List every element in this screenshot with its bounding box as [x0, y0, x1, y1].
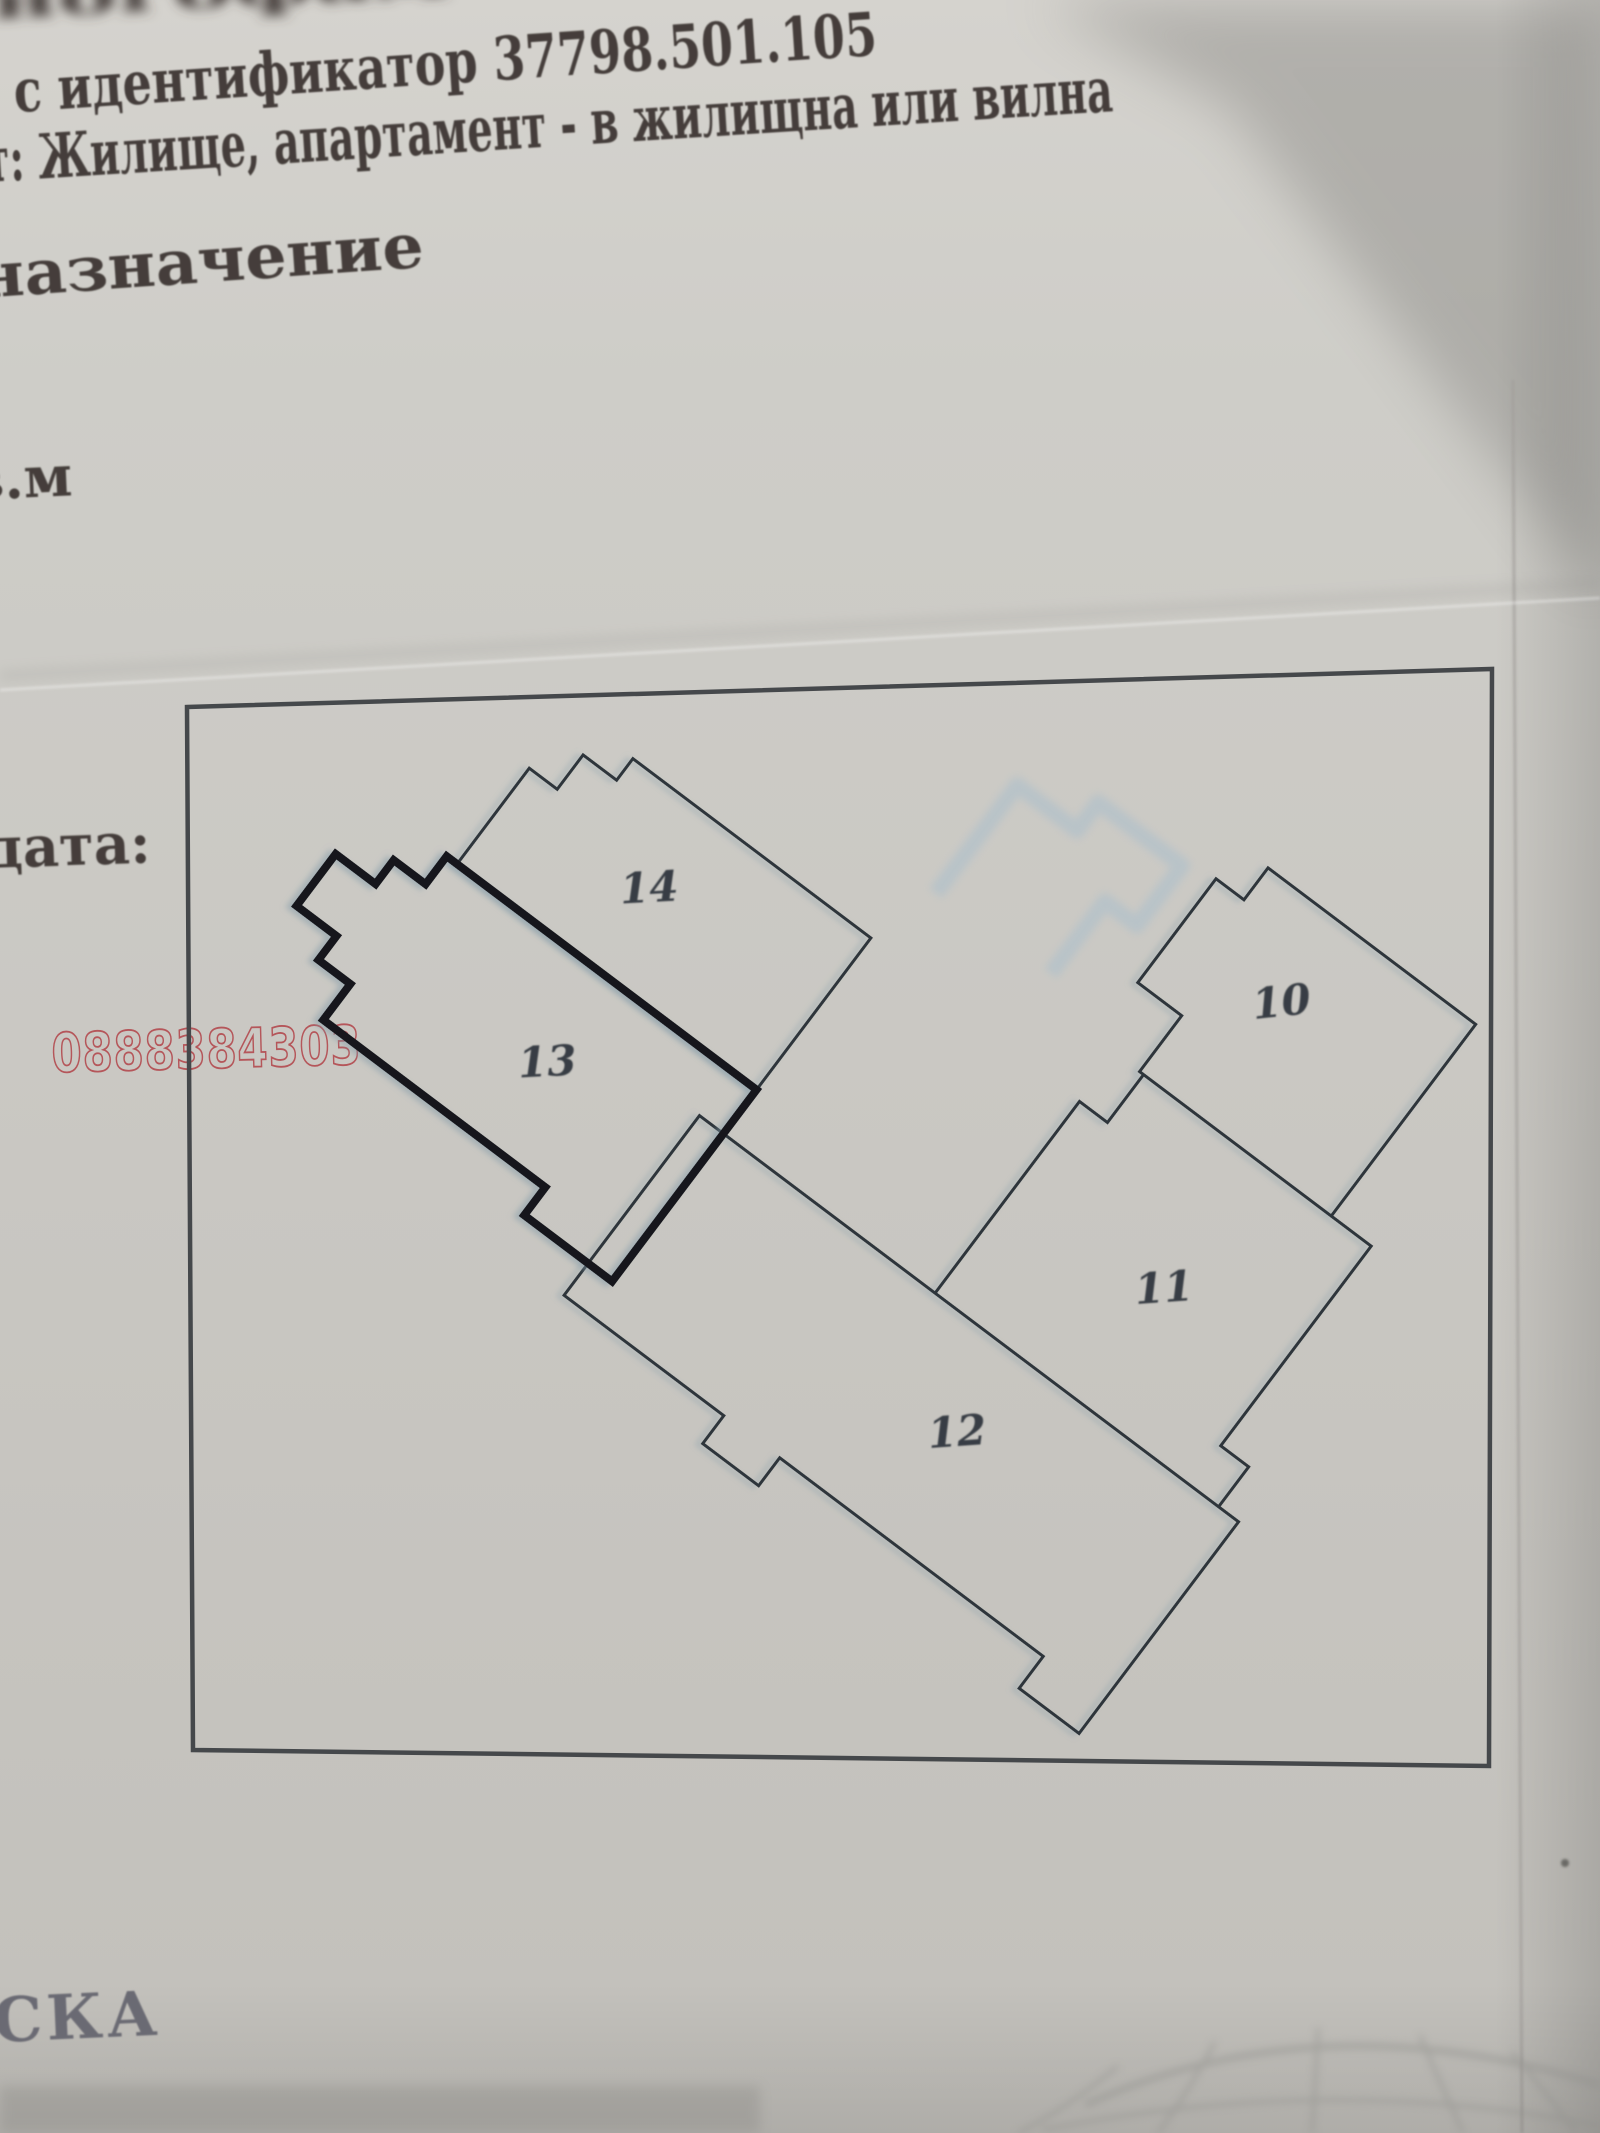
unit-13-label: 13	[517, 1036, 578, 1088]
footer-fragment: СКА	[0, 1977, 163, 2057]
dust-speck	[1561, 1859, 1569, 1867]
unit-12-label: 12	[926, 1405, 988, 1458]
paper-edge-strip	[1495, 0, 1600, 2133]
phone-watermark: 0888384303	[51, 1014, 363, 1085]
document-photo-svg: ногофам с идентификатор 37798.501.105 т:…	[0, 0, 1600, 2133]
unit-10-label: 10	[1250, 974, 1313, 1029]
unit-11-label: 11	[1133, 1261, 1195, 1314]
unit-measure-fragment: в.м	[0, 443, 74, 514]
paper-shading-bottom-left	[0, 2086, 760, 2133]
date-label: дата:	[0, 810, 152, 882]
unit-14-label: 14	[619, 862, 680, 914]
document-photo: ногофам с идентификатор 37798.501.105 т:…	[0, 0, 1600, 2133]
